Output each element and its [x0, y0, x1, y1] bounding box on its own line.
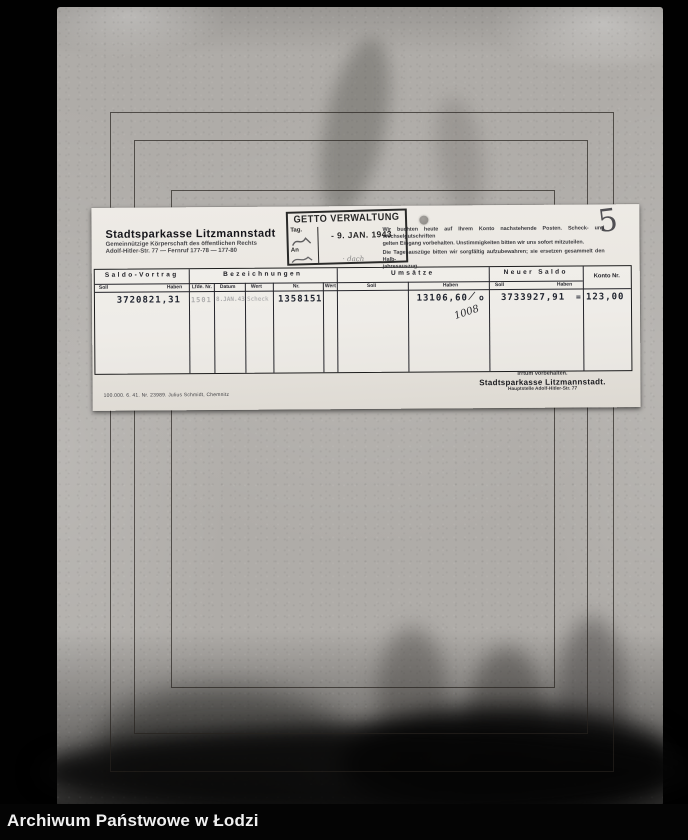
table-rule — [189, 269, 191, 373]
printers-imprint: 100.000. 6. 41. Nr. 23989. Julius Schmid… — [104, 392, 230, 399]
subheader-haben: Haben — [167, 284, 182, 290]
cell-konto-nr: 123,00 — [586, 292, 625, 302]
footer-branch: Hauptstelle Adolf-Hitler-Str. 77 — [423, 386, 663, 393]
notice-line: gelten Eingang vorbehalten. Unstimmigkei… — [383, 239, 605, 248]
subheader-soll: Soll — [495, 282, 504, 288]
col-header-konto-nr: Konto Nr. — [583, 273, 631, 284]
subheader-wert: Wert — [325, 283, 336, 289]
cell-umsaetze-haben: 13106,60 — [373, 293, 468, 304]
subheader-datum: Datum — [220, 284, 236, 290]
table-rule — [489, 267, 491, 371]
balance-table: Saldo-Vortrag Bezeichnungen Umsätze Neue… — [94, 265, 633, 375]
subheader-wert: Wert — [251, 284, 262, 290]
col-header-bezeichnungen: Bezeichnungen — [189, 270, 337, 282]
cell-wert2: 1 — [316, 294, 322, 304]
col-header-umsaetze: Umsätze — [337, 269, 489, 281]
subheader-haben: Haben — [443, 282, 458, 288]
notice-line: Die Tagesauszüge bitten wir sorgfältig a… — [383, 248, 605, 264]
col-header-neuer-saldo: Neuer Saldo — [489, 268, 583, 280]
handwritten-squiggle — [290, 235, 312, 248]
cell-neuer-saldo-haben: 3733927,91 — [501, 293, 565, 303]
punch-hole — [419, 216, 428, 225]
table-rule — [323, 282, 325, 372]
cell-nr: 135815 — [278, 294, 317, 304]
notice-line: Wir buchten heute auf Ihrem Konto nachst… — [382, 225, 604, 241]
bank-address: Adolf-Hitler-Str. 77 — Fernruf 177-78 — … — [106, 248, 276, 255]
bank-subtitle: Gemeinnützige Körperschaft des öffentlic… — [106, 241, 276, 248]
table-rule — [273, 283, 275, 373]
handwritten-amount-note: 1008 — [453, 304, 481, 322]
subheader-nr: Nr. — [293, 283, 300, 289]
equals-mark: = — [576, 292, 582, 301]
archival-photo: Stadtsparkasse Litzmannstadt Gemeinnützi… — [0, 0, 688, 840]
subheader-soll: Soll — [367, 283, 376, 289]
cell-lfde-nr: 1501 — [191, 296, 212, 304]
table-rule — [337, 268, 339, 372]
handwritten-note-dach: · dach — [343, 255, 365, 263]
stamp-title: GETTO VERWALTUNG — [293, 212, 401, 226]
stamp-label-tag: Tag. — [288, 227, 317, 234]
stamp-left-column: Tag. An — [288, 227, 319, 264]
handwritten-check-mark: / — [469, 289, 475, 302]
circle-mark: o — [479, 293, 485, 302]
card-footer: Irrtum vorbehalten. Stadtsparkasse Litzm… — [422, 370, 662, 393]
subheader-lfde-nr: Lfde. Nr. — [192, 284, 212, 290]
subheader-haben: Haben — [557, 282, 572, 288]
archive-label: Archiwum Państwowe w Łodzi — [0, 804, 688, 838]
bank-name: Stadtsparkasse Litzmannstadt — [105, 228, 275, 241]
subheader-soll: Soll — [99, 285, 108, 291]
account-card: Stadtsparkasse Litzmannstadt Gemeinnützi… — [91, 204, 640, 411]
cell-saldo-vortrag-haben: 3720821,31 — [95, 295, 181, 306]
bank-letterhead: Stadtsparkasse Litzmannstadt Gemeinnützi… — [105, 228, 275, 255]
archive-caption-bar: Archiwum Państwowe w Łodzi — [0, 804, 688, 840]
handwritten-page-number: 5 — [596, 202, 620, 240]
cell-datum: 8.JAN.43 — [216, 296, 245, 303]
cell-wert: Scheck — [247, 296, 269, 303]
col-header-saldo-vortrag: Saldo-Vortrag — [95, 271, 189, 283]
handwritten-squiggle — [290, 253, 314, 266]
booking-notice: Wir buchten heute auf Ihrem Konto nachst… — [382, 225, 604, 271]
